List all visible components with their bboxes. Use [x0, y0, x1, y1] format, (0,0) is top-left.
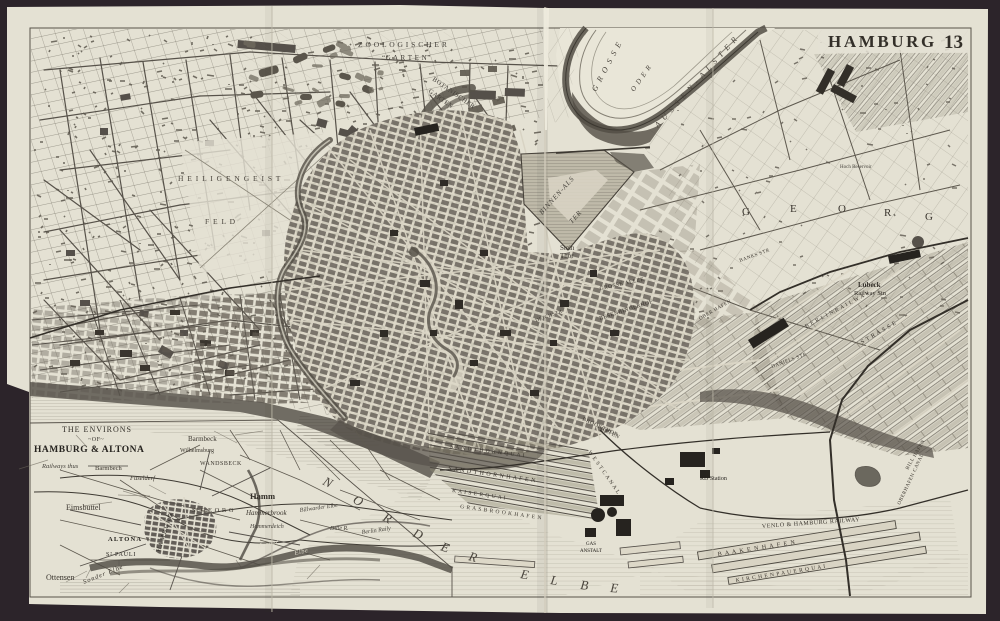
svg-text:O: O [838, 203, 846, 215]
svg-text:Barmbeck: Barmbeck [188, 435, 217, 443]
svg-text:G: G [925, 211, 933, 223]
svg-text:Dille R.: Dille R. [329, 526, 349, 532]
svg-text:Barmbech: Barmbech [95, 465, 122, 472]
svg-text:Ottensen: Ottensen [46, 573, 74, 582]
svg-text:S² PAULI: S² PAULI [106, 552, 136, 558]
svg-text:Fuselderf: Fuselderf [129, 475, 156, 482]
svg-text:~OF~: ~OF~ [88, 437, 104, 443]
svg-text:G: G [742, 206, 750, 218]
svg-text:THE ENVIRONS: THE ENVIRONS [62, 425, 132, 434]
svg-text:RD Station: RD Station [700, 476, 727, 482]
svg-text:13: 13 [944, 32, 963, 53]
svg-text:GAS: GAS [586, 542, 596, 547]
svg-text:Hammerdeich: Hammerdeich [249, 524, 284, 530]
svg-text:Lubeck: Lubeck [858, 281, 881, 289]
svg-text:Z O O L O G I S C H E R: Z O O L O G I S C H E R [358, 40, 447, 49]
svg-text:HAMBURG & ALTONA: HAMBURG & ALTONA [34, 445, 144, 455]
svg-text:Stein: Stein [560, 244, 575, 252]
svg-text:Hamm: Hamm [250, 491, 275, 501]
svg-text:HAMBURG: HAMBURG [828, 32, 937, 51]
svg-text:ALTONA: ALTONA [108, 536, 142, 543]
svg-text:Railways thus: Railways thus [41, 463, 79, 470]
svg-text:ANSTALT: ANSTALT [580, 549, 602, 554]
svg-text:B: B [580, 577, 590, 593]
svg-text:H E I L I G E N G E I S T: H E I L I G E N G E I S T [178, 174, 281, 183]
svg-text:Hammerbrook: Hammerbrook [245, 509, 287, 517]
svg-text:F E L D: F E L D [205, 217, 236, 226]
svg-text:Wilhelmsburg: Wilhelmsburg [180, 448, 214, 454]
svg-text:E: E [609, 580, 619, 596]
svg-text:Hoch Reservoir: Hoch Reservoir [840, 165, 872, 170]
svg-text:Thor: Thor [560, 252, 574, 260]
svg-text:E: E [790, 203, 797, 215]
svg-text:S² G E O R G: S² G E O R G [192, 507, 234, 514]
svg-text:WANDSBECK: WANDSBECK [200, 461, 242, 467]
svg-text:Eimsbuttel: Eimsbuttel [66, 503, 101, 512]
svg-text:R: R [884, 207, 892, 219]
svg-text:“G A R T E N”: “G A R T E N” [382, 54, 431, 62]
